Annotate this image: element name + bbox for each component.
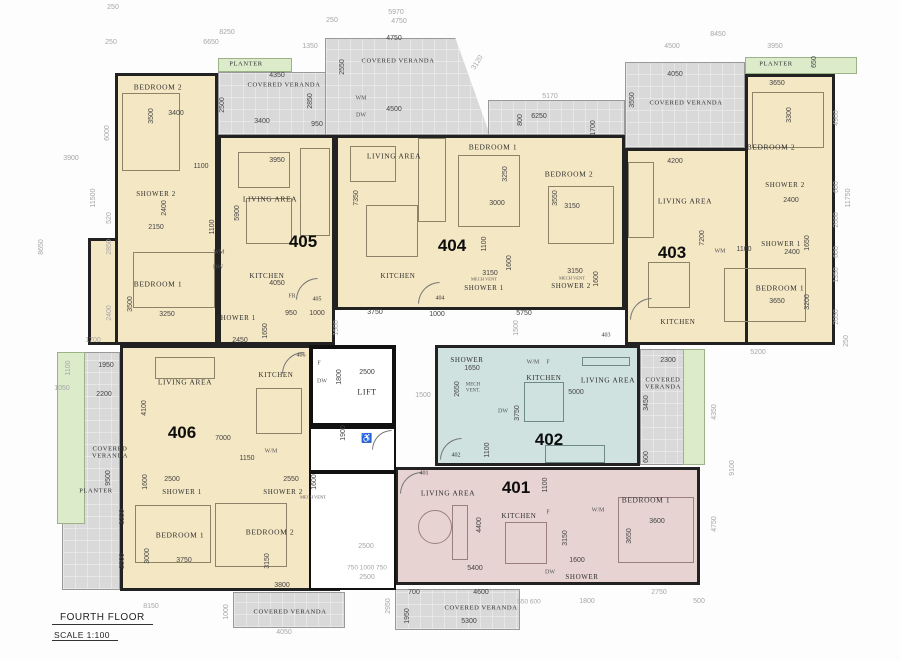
- lift-shaft: [309, 345, 396, 427]
- dim: 6000: [104, 125, 112, 141]
- dim: 250: [105, 39, 117, 47]
- dim: 3120: [470, 54, 485, 71]
- furniture-table: [648, 262, 690, 308]
- dim: 1350: [302, 43, 318, 51]
- furniture-bed: [548, 186, 614, 244]
- dim: 4500: [664, 43, 680, 51]
- veranda-405-top: [218, 72, 335, 135]
- veranda-404-top: [325, 38, 490, 135]
- dim: 1000: [429, 311, 445, 319]
- dim: 8250: [219, 29, 235, 37]
- dim: 250: [843, 335, 851, 347]
- stairwell: [309, 472, 396, 590]
- dim: 8150: [143, 603, 159, 611]
- furniture-round-table: [418, 510, 452, 544]
- title-block: FOURTH FLOOR SCALE 1:100: [52, 612, 153, 643]
- furniture-sofa: [238, 152, 290, 188]
- dim: 2950: [385, 598, 393, 614]
- unit-405-area-c: [88, 238, 118, 345]
- dim: 11750: [845, 189, 853, 208]
- furniture-sofa: [628, 162, 654, 238]
- dim: 4050: [276, 629, 292, 637]
- dim: 250: [107, 4, 119, 12]
- planter-406-left: [57, 352, 85, 524]
- furniture-bed: [122, 93, 180, 171]
- dim: 3750: [367, 309, 383, 317]
- dim: 5200: [750, 349, 766, 357]
- furniture-cabinet: [452, 505, 468, 560]
- dim: 3950: [767, 43, 783, 51]
- furniture-sofa: [155, 357, 215, 379]
- furniture-sofa: [300, 148, 330, 236]
- dim: 11500: [90, 189, 98, 208]
- furniture-bed: [752, 92, 824, 148]
- furniture-table: [366, 205, 418, 257]
- furniture-table: [256, 388, 302, 434]
- dim: 5970: [388, 9, 404, 17]
- door-tag: 403: [602, 333, 611, 340]
- furniture-bed: [458, 155, 520, 227]
- veranda-walkway-top: [488, 100, 625, 135]
- furniture-table: [524, 382, 564, 422]
- dim: 3900: [63, 155, 79, 163]
- furniture-sofa: [545, 445, 605, 463]
- veranda-403-top: [625, 62, 745, 148]
- furniture-shelf: [582, 357, 630, 366]
- furniture-table: [246, 198, 292, 244]
- dim: 550 600: [517, 598, 541, 605]
- floor-title: FOURTH FLOOR: [52, 612, 153, 625]
- furniture-bed: [215, 503, 287, 567]
- dim: 1800: [579, 598, 595, 606]
- furniture-bed: [618, 497, 694, 563]
- dim: 8450: [710, 31, 726, 39]
- dim: 2750: [651, 589, 667, 597]
- planter-402-right: [683, 349, 705, 465]
- veranda-406-bottom: [233, 592, 345, 628]
- furniture-sofa: [350, 146, 396, 182]
- veranda-402-right: [640, 349, 684, 465]
- scale-label: SCALE 1:100: [52, 629, 118, 641]
- dim: 500: [693, 598, 705, 606]
- furniture-bed: [724, 268, 806, 322]
- veranda-401-bottom: [395, 589, 520, 630]
- dim: 520: [106, 212, 114, 224]
- floor-plan: FOURTH FLOOR SCALE 1:100 405404403406402…: [0, 0, 900, 661]
- furniture-sofa: [418, 138, 446, 222]
- dim: 9100: [729, 460, 737, 476]
- furniture-table: [505, 522, 547, 564]
- dim: 8650: [38, 239, 46, 255]
- dim: 1500: [415, 392, 431, 400]
- dim: 1000: [223, 604, 231, 620]
- dim: 4350: [711, 404, 719, 420]
- planter-403-top: [745, 57, 857, 74]
- dim: 6650: [203, 39, 219, 47]
- furniture-bed: [135, 505, 211, 563]
- dim: 5750: [516, 310, 532, 318]
- furniture-bed: [133, 252, 215, 308]
- dim: 250: [326, 17, 338, 25]
- dim: 4750: [711, 516, 719, 532]
- dim: 1500: [513, 320, 521, 336]
- dim: 4750: [391, 18, 407, 26]
- planter-405-top: [218, 58, 292, 72]
